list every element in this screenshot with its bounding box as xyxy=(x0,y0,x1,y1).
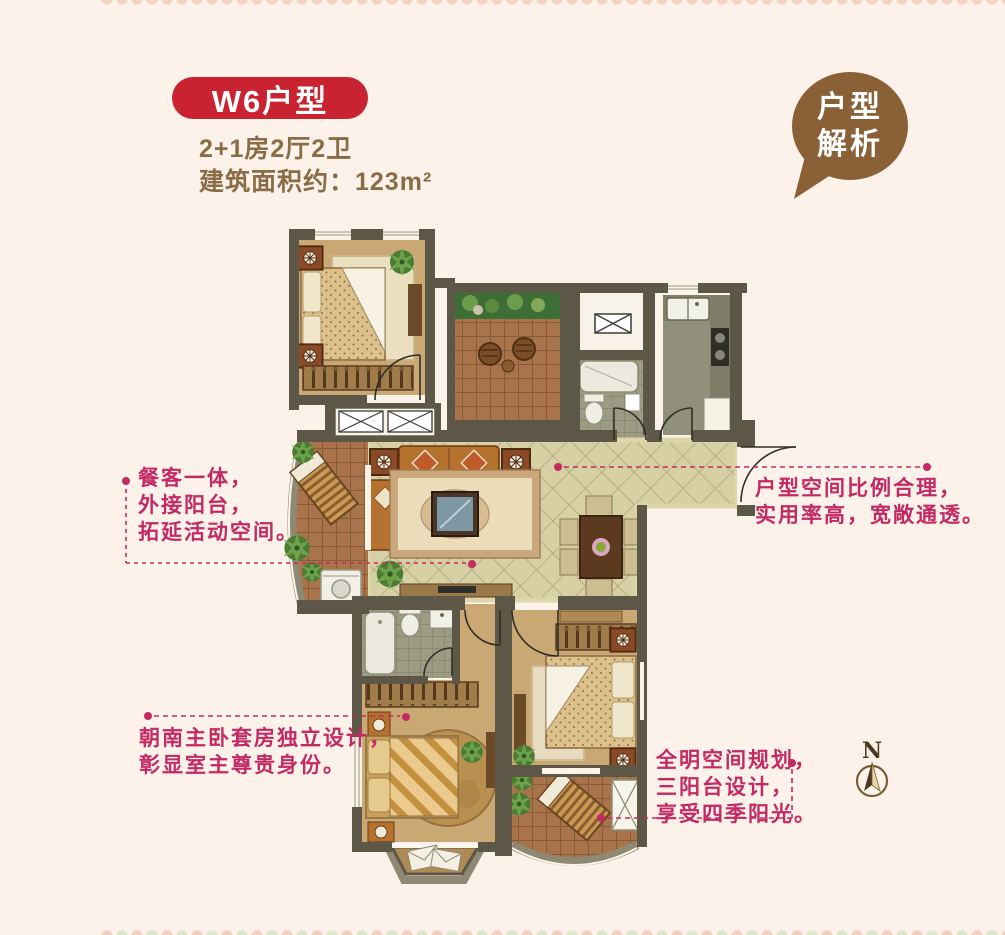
annotation-line: 三阳台设计， xyxy=(656,773,817,800)
compass-north-label: N xyxy=(862,738,882,764)
second-bedroom-south xyxy=(512,610,637,772)
annotation-line: 餐客一体， xyxy=(138,464,299,491)
radiator-panel xyxy=(612,780,638,830)
annotation-line: 享受四季阳光。 xyxy=(656,800,817,827)
annotation-line: 户型空间比例合理， xyxy=(755,474,985,501)
coffee-table xyxy=(432,492,478,536)
tv-cabinet xyxy=(400,584,512,597)
storage-room xyxy=(580,295,643,350)
secondary-bedroom-north xyxy=(297,240,425,395)
annotation-master-suite: 朝南主卧套房独立设计， 彰显室主尊贵身份。 xyxy=(139,724,392,778)
living-dining-hall xyxy=(366,440,737,600)
master-wardrobe xyxy=(366,682,478,707)
cabinet-north xyxy=(408,284,422,336)
annotation-line: 外接阳台， xyxy=(138,491,299,518)
annotation-dining: 餐客一体， 外接阳台， 拓延活动空间。 xyxy=(138,464,299,545)
garden-balcony xyxy=(455,293,560,428)
bed-south xyxy=(546,656,636,748)
cabinet xyxy=(560,611,622,622)
compass: N xyxy=(857,738,887,796)
kitchen-cabinet xyxy=(704,398,730,432)
annotation-line: 彰显室主尊贵身份。 xyxy=(139,751,392,778)
annotation-line: 拓延活动空间。 xyxy=(138,518,299,545)
shared-bathroom xyxy=(577,358,645,440)
south-balcony xyxy=(507,768,638,865)
wardrobe-north xyxy=(303,366,413,390)
annotation-proportion: 户型空间比例合理， 实用率高，宽敞通透。 xyxy=(755,474,985,528)
stove xyxy=(711,328,729,366)
annotation-line: 实用率高，宽敞通透。 xyxy=(755,501,985,528)
floorplan-poster: W6户型 2+1房2厅2卫 建筑面积约：123m² 户型 解析 xyxy=(0,0,1005,935)
annotation-balconies: 全明空间规划， 三阳台设计， 享受四季阳光。 xyxy=(656,746,817,827)
annotation-line: 朝南主卧套房独立设计， xyxy=(139,724,392,751)
bay-window xyxy=(388,844,482,880)
desk xyxy=(514,694,526,750)
annotation-line: 全明空间规划， xyxy=(656,746,817,773)
master-bathroom xyxy=(362,606,454,678)
kitchen-sink xyxy=(667,298,709,320)
